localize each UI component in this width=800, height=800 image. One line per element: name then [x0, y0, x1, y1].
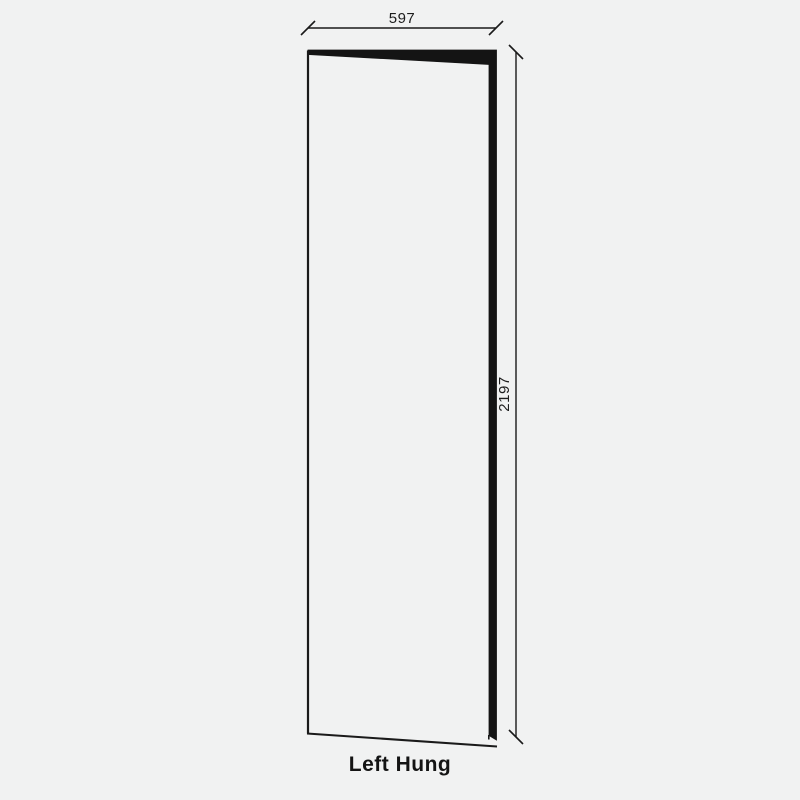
- width-dimension: 597: [301, 10, 503, 35]
- door-bottom-edge: [307, 734, 497, 747]
- height-dimension: 2197: [496, 45, 523, 744]
- door-diagram: 597 2197 Left Hung: [0, 0, 800, 800]
- door-edge-surface: [308, 50, 497, 740]
- width-dimension-value: 597: [389, 10, 416, 27]
- door-drawing-svg: 597 2197: [0, 0, 800, 800]
- diagram-label: Left Hung: [0, 753, 800, 777]
- height-dimension-value: 2197: [496, 376, 513, 411]
